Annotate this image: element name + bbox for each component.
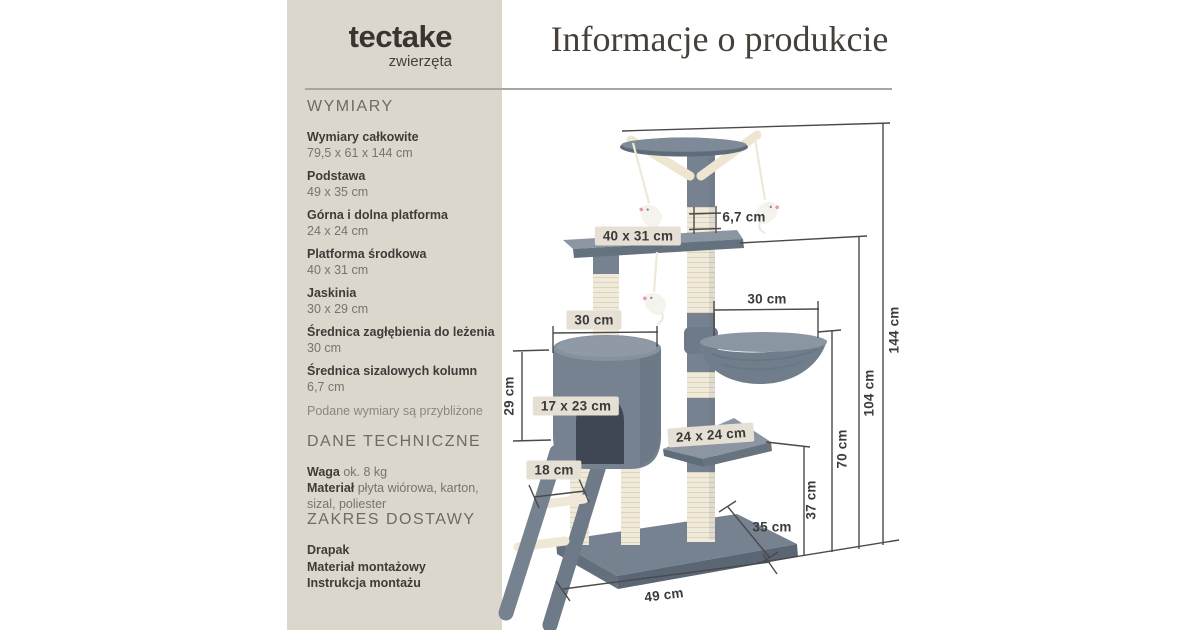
section-delivery: ZAKRES DOSTAWY Drapak Materiał montażowy… <box>307 511 502 592</box>
technical-heading: DANE TECHNICZNE <box>307 433 502 451</box>
dim-label-cave-height: 29 cm <box>502 376 517 415</box>
delivery-item: Materiał montażowy <box>307 559 502 576</box>
dim-label-ladder-rung: 18 cm <box>526 461 581 480</box>
dim-label-cave-width: 30 cm <box>566 311 621 330</box>
section-dimensions: WYMIARY Wymiary całkowite 79,5 x 61 x 14… <box>307 98 502 419</box>
brand-name: tectake <box>300 21 452 52</box>
list-item: Podstawa 49 x 35 cm <box>307 168 502 200</box>
dim-label-height-104: 104 cm <box>862 370 877 417</box>
brand-logo: tectake zwierzęta <box>300 21 452 69</box>
list-item: Platforma środkowa 40 x 31 cm <box>307 246 502 278</box>
toy-mouse-middle <box>635 288 672 325</box>
dim-label-height-37: 37 cm <box>804 480 819 519</box>
dim-label-basket-width: 30 cm <box>747 292 786 307</box>
dim-label-base-depth: 35 cm <box>752 520 791 535</box>
delivery-item: Drapak <box>307 542 502 559</box>
list-item: Średnica sizalowych kolumn 6,7 cm <box>307 363 502 395</box>
section-technical: DANE TECHNICZNE Waga ok. 8 kg Materiał p… <box>307 433 502 512</box>
list-item: Górna i dolna platforma 24 x 24 cm <box>307 207 502 239</box>
delivery-heading: ZAKRES DOSTAWY <box>307 511 502 529</box>
dim-label-middle-platform: 40 x 31 cm <box>595 227 681 246</box>
tech-row-weight: Waga ok. 8 kg <box>307 464 502 480</box>
dim-label-cave-door: 17 x 23 cm <box>533 397 619 416</box>
dim-label-height-144: 144 cm <box>887 307 902 354</box>
brand-tagline: zwierzęta <box>300 54 452 69</box>
dim-label-height-70: 70 cm <box>835 429 850 468</box>
list-item: Wymiary całkowite 79,5 x 61 x 144 cm <box>307 129 502 161</box>
tech-row-material: Materiał płyta wiórowa, karton, sizal, p… <box>307 480 502 512</box>
dim-label-column-diameter: 6,7 cm <box>722 210 765 225</box>
list-item: Jaskinia 30 x 29 cm <box>307 285 502 317</box>
dimensions-heading: WYMIARY <box>307 98 502 116</box>
list-item: Średnica zagłębienia do leżenia 30 cm <box>307 324 502 356</box>
dimensions-note: Podane wymiary są przybliżone <box>307 403 502 419</box>
cave-leg-right <box>621 460 640 545</box>
header-divider <box>305 88 892 90</box>
delivery-item: Instrukcja montażu <box>307 575 502 592</box>
page-title: Informacje o produkcie <box>502 18 937 60</box>
product-info-sheet: tectake zwierzęta Informacje o produkcie… <box>0 0 1200 630</box>
